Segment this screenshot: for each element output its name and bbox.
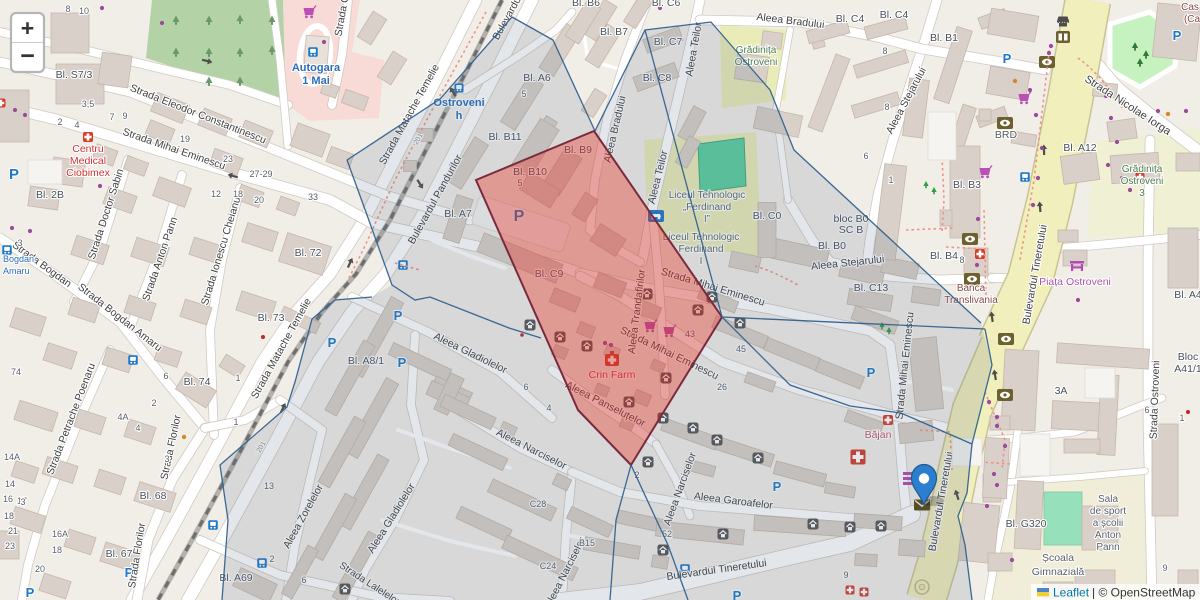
svg-text:14A: 14A [4, 452, 20, 462]
svg-text:Bl. 2B: Bl. 2B [36, 189, 64, 201]
svg-text:1: 1 [888, 175, 893, 185]
svg-text:Bl. 67: Bl. 67 [106, 548, 133, 560]
svg-text:Bl. B1: Bl. B1 [930, 32, 958, 44]
svg-text:3: 3 [20, 497, 25, 507]
svg-text:Bl. 74: Bl. 74 [184, 376, 211, 388]
svg-text:33: 33 [308, 192, 318, 202]
svg-text:8: 8 [884, 102, 889, 112]
svg-text:10: 10 [79, 6, 89, 16]
svg-text:Pann: Pann [1096, 542, 1119, 553]
svg-text:4: 4 [74, 120, 79, 130]
svg-text:BRD: BRD [995, 129, 1018, 141]
svg-text:14: 14 [5, 479, 15, 489]
svg-text:74: 74 [11, 367, 21, 377]
svg-text:P: P [26, 585, 35, 600]
svg-text:Cas: Cas [1181, 2, 1199, 13]
svg-text:27-29: 27-29 [249, 169, 272, 179]
svg-text:18: 18 [4, 511, 14, 521]
svg-text:1: 1 [1179, 413, 1184, 423]
svg-text:Bogdan: Bogdan [3, 254, 34, 264]
svg-text:Piața Ostroveni: Piața Ostroveni [1039, 276, 1111, 288]
svg-text:Leaflet: Leaflet [1053, 586, 1090, 600]
svg-text:P: P [1173, 28, 1182, 43]
svg-text:Bl. B7: Bl. B7 [600, 26, 628, 38]
svg-text:Bl. 68: Bl. 68 [140, 490, 167, 502]
svg-text:8: 8 [882, 46, 887, 56]
svg-text:Bl. B6: Bl. B6 [572, 0, 600, 9]
svg-text:Ciobimex: Ciobimex [66, 167, 111, 179]
svg-text:Grădinița: Grădinița [1122, 164, 1163, 175]
svg-text:P: P [1003, 51, 1012, 66]
svg-text:(Ca: (Ca [1184, 14, 1200, 25]
svg-text:3: 3 [17, 238, 22, 248]
svg-text:Bl. G320: Bl. G320 [1006, 518, 1047, 530]
svg-text:2: 2 [151, 398, 156, 408]
svg-text:Bl. C4: Bl. C4 [836, 13, 865, 25]
svg-text:Bl. S7/3: Bl. S7/3 [56, 69, 93, 81]
svg-text:3: 3 [164, 454, 169, 464]
svg-text:12: 12 [211, 189, 221, 199]
svg-text:8: 8 [959, 255, 964, 265]
svg-text:8: 8 [65, 4, 70, 14]
svg-text:Amaru: Amaru [3, 266, 30, 276]
svg-text:Gimnazială: Gimnazială [1032, 566, 1085, 578]
svg-text:23: 23 [223, 154, 233, 164]
svg-text:6: 6 [1144, 405, 1149, 415]
svg-text:Bl. C4: Bl. C4 [880, 9, 909, 21]
svg-text:6: 6 [863, 151, 868, 161]
svg-text:6: 6 [163, 371, 168, 381]
svg-text:Grădinița: Grădinița [736, 45, 777, 56]
svg-text:a școlii: a școlii [1093, 518, 1124, 529]
svg-text:1: 1 [235, 373, 240, 383]
svg-text:2: 2 [57, 117, 62, 127]
svg-text:Anton: Anton [1095, 530, 1121, 541]
svg-text:Bl. A12: Bl. A12 [1063, 142, 1096, 154]
svg-text:4A: 4A [117, 412, 128, 422]
svg-text:Centru: Centru [72, 143, 104, 155]
svg-text:Sala: Sala [1098, 494, 1118, 505]
svg-text:18: 18 [233, 189, 243, 199]
svg-text:20: 20 [35, 564, 45, 574]
svg-text:1 Mai: 1 Mai [302, 75, 330, 87]
svg-text:Medical: Medical [70, 155, 106, 167]
svg-text:Școala: Școala [1042, 552, 1074, 564]
svg-text:1: 1 [233, 417, 238, 427]
svg-text:Ostroveni: Ostroveni [1121, 176, 1164, 187]
svg-text:P: P [9, 166, 19, 183]
svg-text:Bl. A4: Bl. A4 [1174, 289, 1200, 301]
svg-text:9: 9 [122, 111, 127, 121]
svg-text:16A: 16A [52, 529, 68, 539]
svg-text:Bl. B4: Bl. B4 [930, 250, 958, 262]
svg-text:19: 19 [180, 134, 190, 144]
svg-text:Bl. C6: Bl. C6 [652, 0, 681, 9]
svg-text:9: 9 [1162, 563, 1167, 573]
svg-text:de sport: de sport [1090, 506, 1126, 517]
svg-text:Autogara: Autogara [292, 62, 341, 74]
svg-text:3: 3 [1139, 188, 1145, 199]
svg-text:+: + [21, 15, 34, 41]
svg-text:23: 23 [5, 541, 15, 551]
svg-text:18: 18 [52, 545, 62, 555]
svg-text:| © OpenStreetMap: | © OpenStreetMap [1092, 586, 1196, 600]
svg-text:3A: 3A [1055, 385, 1068, 397]
svg-text:21: 21 [8, 526, 18, 536]
svg-text:Bl. 72: Bl. 72 [295, 247, 322, 259]
svg-text:Bl. 73: Bl. 73 [258, 312, 285, 324]
svg-text:Bloc: Bloc [1178, 351, 1198, 363]
svg-text:3,5: 3,5 [82, 99, 95, 109]
svg-text:−: − [20, 42, 35, 70]
svg-text:A41/1: A41/1 [1174, 363, 1200, 375]
svg-text:Bl. B3: Bl. B3 [953, 179, 981, 191]
svg-text:20: 20 [254, 195, 264, 205]
svg-text:7: 7 [109, 112, 114, 122]
svg-text:16: 16 [3, 494, 13, 504]
svg-text:Banca: Banca [957, 283, 986, 294]
svg-text:4: 4 [135, 423, 140, 433]
